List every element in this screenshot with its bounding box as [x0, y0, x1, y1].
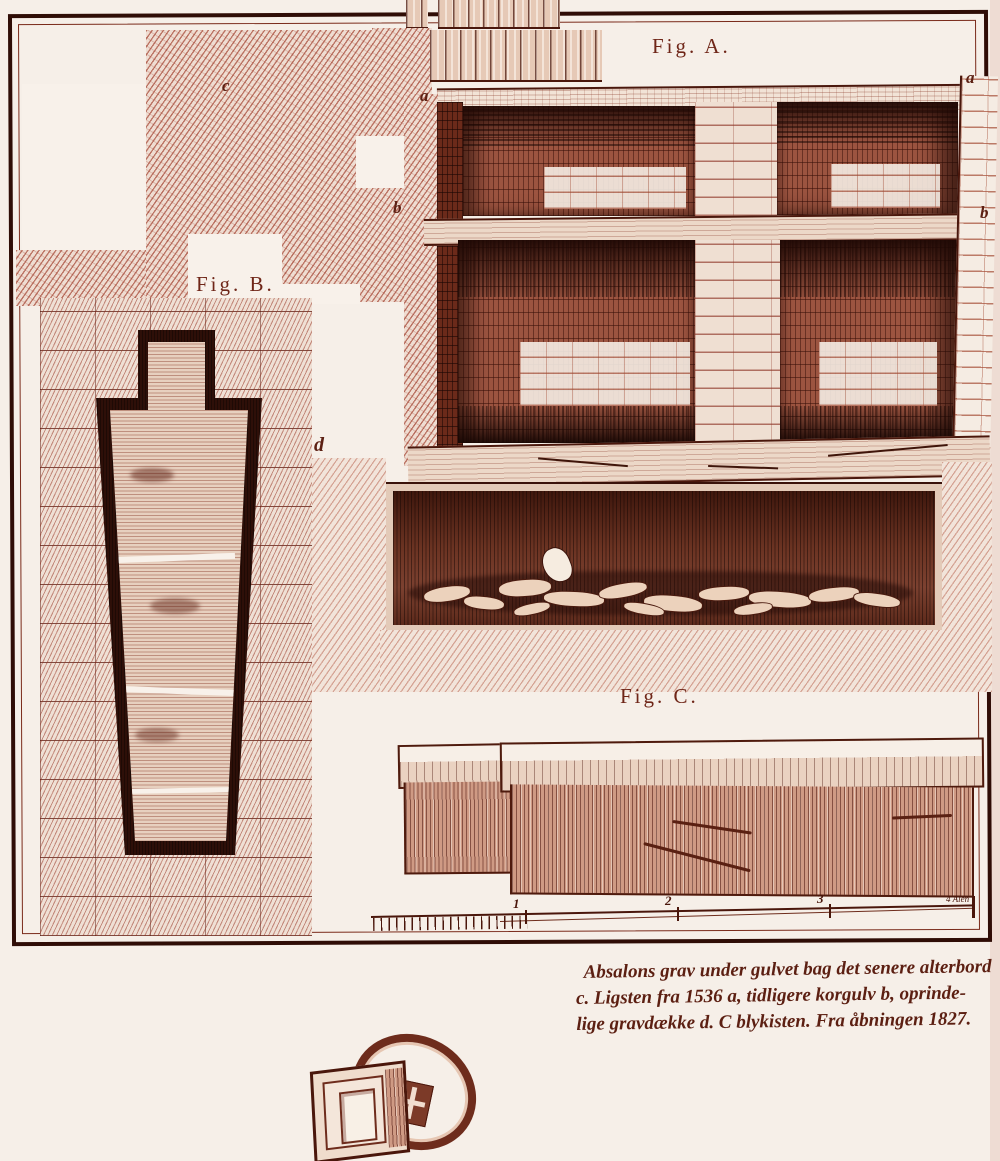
masonry-hatching-grave-right: [942, 462, 992, 692]
figa-open-grave: [384, 482, 944, 634]
figa-hatch-band: [372, 28, 432, 94]
bright-brick-patch: [831, 164, 940, 208]
scale-major-tick-1: [525, 910, 527, 924]
figa-upper-niche-right: [777, 102, 958, 215]
floor-opening-white: [22, 84, 146, 250]
plate-caption: Absalons grav under gulvet bag det sener…: [575, 954, 1000, 1039]
bright-brick-patch: [819, 342, 936, 407]
figb-plan-view: [40, 298, 312, 936]
step-opening-1: [356, 136, 406, 188]
figure-b-label: Fig. B.: [196, 272, 275, 297]
figure-a-label: Fig. A.: [652, 34, 731, 59]
figa-upper-niche-left: [463, 106, 695, 216]
bezel-stone: [339, 1088, 378, 1144]
figc-lead-coffin-body: [510, 784, 974, 897]
bright-brick-patch: [544, 167, 686, 210]
figa-lower-niche-left: [458, 240, 695, 443]
figa-lower-niche-right: [780, 240, 958, 443]
marker-c: c: [222, 76, 230, 96]
marker-b-left: b: [393, 198, 402, 218]
scale-minor-ticks: [373, 916, 527, 931]
figure-c-label: Fig. C.: [620, 684, 699, 709]
marker-d: d: [314, 434, 324, 457]
ledge-crack: [828, 444, 948, 456]
ring-bezel: [310, 1060, 410, 1161]
scale-number-3: 3: [817, 891, 824, 907]
scale-end-tick: [972, 896, 975, 918]
figa-upper-wall-planks: [430, 30, 602, 82]
slab-crack-gap: [122, 686, 234, 696]
slab-crack-gap: [125, 787, 231, 794]
bright-brick-patch: [520, 342, 691, 407]
marker-a-right: a: [966, 68, 975, 88]
coffin-dent: [672, 820, 752, 835]
coffin-dent: [892, 814, 952, 820]
figb-grave-slab: [40, 298, 312, 936]
scale-unit-label: 4 Alen: [946, 894, 969, 904]
slab-crack-gap: [115, 553, 235, 563]
slab-stain: [150, 598, 200, 614]
bezel-side-face: [385, 1068, 407, 1148]
figa-left-hatch-strip: [404, 94, 438, 466]
masonry-above-frame-right: [438, 0, 560, 29]
ring-illustration: [298, 1030, 478, 1161]
masonry-above-frame-left: [406, 0, 428, 29]
grave-interior: [393, 491, 935, 625]
bezel-frame: [322, 1075, 386, 1150]
scale-number-2: 2: [665, 893, 672, 909]
ledge-crack: [538, 457, 628, 466]
figa-right-wall: [952, 76, 998, 465]
scale-major-tick-3: [829, 904, 831, 918]
figa-center-pier-upper: [695, 102, 777, 216]
ledge-crack: [708, 465, 778, 469]
coffin-dent: [643, 842, 750, 872]
engraved-plate-page: Fig. A.: [0, 0, 1000, 1161]
masonry-hatching-grave-left: [312, 458, 386, 692]
masonry-hatching-grave-below: [380, 630, 950, 692]
scale-number-1: 1: [513, 896, 520, 912]
marker-b-right: b: [980, 203, 989, 223]
slab-stain: [130, 468, 174, 482]
marker-a-left: a: [420, 86, 429, 106]
figc-coffin-foot-body: [404, 782, 515, 875]
scale-major-tick-2: [677, 907, 679, 921]
figa-center-pier-lower: [695, 240, 780, 443]
caption-line-3: lige gravdække d. C blykisten. Fra åbnin…: [576, 1006, 1000, 1038]
slab-stain: [135, 728, 179, 742]
